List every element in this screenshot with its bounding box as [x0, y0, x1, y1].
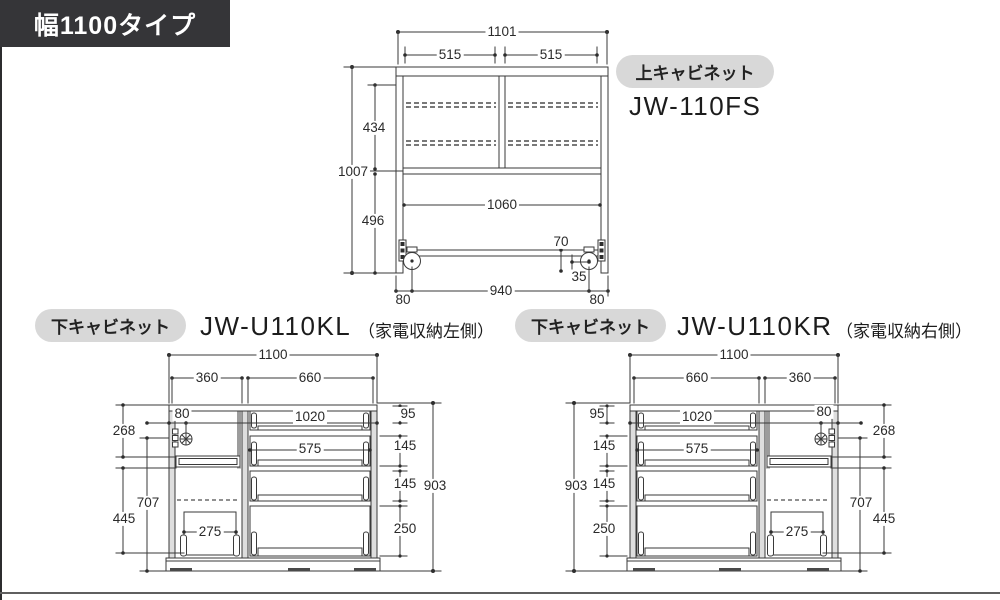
upper-cabinet-drawing: [344, 30, 610, 296]
dim-upper-inner-width: 1060: [485, 198, 519, 212]
dim-ll-total-height: 903: [422, 479, 449, 493]
dim-lr-drawer-inner-width: 575: [684, 442, 711, 456]
dim-lr-drawer-width: 660: [684, 371, 711, 385]
lower-left-cabinet-badge: 下キャビネット: [35, 309, 186, 342]
drawer-4: [250, 506, 370, 556]
dim-ll-slide-rack-width: 275: [197, 525, 224, 539]
dim-upper-total-height: 1007: [336, 165, 370, 179]
dim-upper-total-width: 1101: [485, 25, 518, 39]
dim-ll-upper-door-height: 268: [111, 424, 138, 438]
lower-left-cabinet-note: （家電収納左側）: [358, 317, 494, 342]
dim-upper-base-right: 80: [587, 293, 606, 307]
dim-ll-open-space-height: 445: [111, 512, 138, 526]
knob-icon: [180, 433, 192, 445]
dim-upper-right-door: 515: [538, 48, 565, 62]
dim-ll-appliance-width: 360: [194, 371, 221, 385]
upper-cabinet-model: JW-110FS: [629, 91, 761, 122]
dim-lr-third-drawer-height: 145: [591, 477, 618, 491]
dim-ll-drawer-width: 660: [297, 371, 324, 385]
hinge-plates-icon: [173, 429, 179, 447]
lower-right-cabinet-badge: 下キャビネット: [515, 309, 666, 342]
dim-lr-lower-section-height: 707: [848, 496, 875, 510]
dim-lr-second-drawer-height: 145: [591, 439, 618, 453]
dim-upper-left-door: 515: [437, 48, 464, 62]
dim-upper-caster-height: 70: [551, 235, 570, 249]
dim-lr-top-drawer-height: 95: [587, 407, 606, 421]
dim-ll-total-width: 1100: [256, 348, 289, 362]
dim-ll-top-drawer-height: 95: [398, 407, 417, 421]
dim-upper-caster-inset: 35: [569, 270, 588, 284]
dim-ll-third-drawer-height: 145: [392, 477, 419, 491]
dim-lr-total-width: 1100: [717, 348, 750, 362]
dim-lr-appliance-width: 360: [787, 371, 814, 385]
dim-lr-open-space-height: 445: [871, 512, 898, 526]
lower-left-cabinet-drawing: [116, 353, 441, 573]
drawer-4: [637, 506, 757, 556]
dim-lr-knob-offset: 80: [814, 405, 833, 419]
drawer-3: [250, 471, 370, 501]
knob-icon: [815, 433, 827, 445]
diagram-stage: 幅1100タイプ 上キャビネット JW-110FS 下キャビネット JW-U11…: [0, 0, 1000, 600]
left-edge-rule: [0, 0, 2, 600]
dim-ll-drawer-inner-width: 575: [297, 442, 324, 456]
hinge-plates-icon: [829, 429, 835, 447]
page-title: 幅1100タイプ: [0, 0, 230, 47]
dim-upper-lower-inner-height: 496: [360, 214, 387, 228]
dim-upper-caster-span: 940: [488, 284, 515, 298]
dim-upper-upper-inner-height: 434: [361, 121, 388, 135]
lower-left-cabinet-model: JW-U110KL: [200, 311, 351, 342]
dim-lr-slide-rack-width: 275: [784, 525, 811, 539]
dim-ll-bottom-drawer-height: 250: [392, 522, 419, 536]
dim-ll-knob-offset: 80: [172, 407, 191, 421]
dim-ll-lower-section-height: 707: [135, 496, 162, 510]
bottom-rule: [0, 592, 1000, 594]
dim-lr-bottom-drawer-height: 250: [591, 522, 618, 536]
caster-bracket-right-icon: [598, 240, 605, 261]
dim-ll-top-drawer-inner-width: 1020: [293, 410, 327, 424]
dim-lr-upper-door-height: 268: [871, 424, 898, 438]
dim-ll-second-drawer-height: 145: [392, 439, 419, 453]
lower-right-cabinet-note: （家電収納右側）: [836, 317, 972, 342]
drawer-3: [637, 471, 757, 501]
dim-lr-top-drawer-inner-width: 1020: [680, 410, 714, 424]
lower-right-cabinet-drawing: [566, 353, 891, 573]
upper-cabinet-badge: 上キャビネット: [616, 55, 774, 88]
dim-lr-total-height: 903: [563, 479, 590, 493]
dim-upper-base-left: 80: [393, 293, 412, 307]
lower-right-cabinet-model: JW-U110KR: [677, 311, 833, 342]
